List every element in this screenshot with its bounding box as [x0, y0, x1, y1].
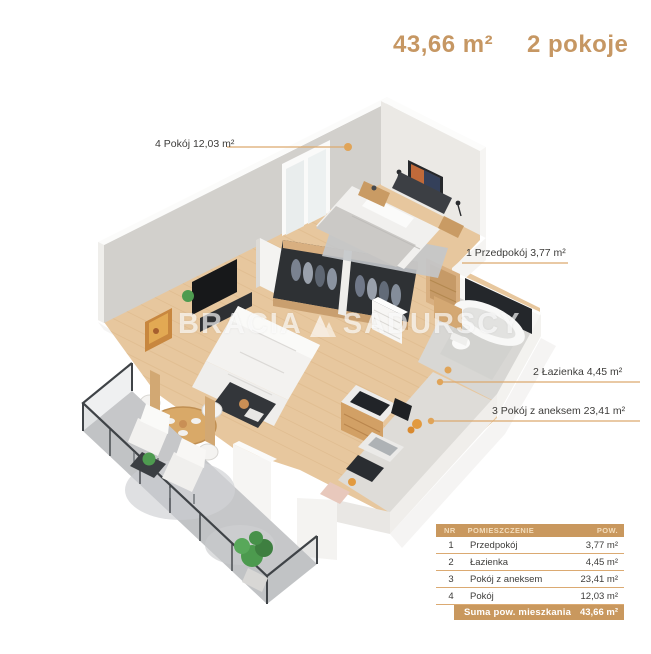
- row-area: 4,45 m²: [586, 557, 618, 568]
- table-header-row: NR POMIESZCZENIE POW.: [436, 524, 624, 537]
- row-room: Pokój z aneksem: [470, 574, 581, 585]
- table-plant: [143, 453, 156, 466]
- watermark-left: BRACIA: [178, 308, 303, 341]
- row-area: 23,41 m²: [581, 574, 619, 585]
- footer-label: Suma pow. mieszkania: [464, 607, 580, 618]
- header-room: POMIESZCZENIE: [468, 526, 597, 535]
- watermark-right: SADURSCY: [343, 308, 522, 341]
- table-row: 4 Pokój 12,03 m²: [436, 588, 624, 605]
- agency-watermark: BRACIA SADURSCY: [178, 308, 522, 341]
- listing-floorplan-image: 43,66 m² 2 pokoje BRACIA SADURSCY 4 Pokó…: [0, 0, 651, 654]
- header-area: POW.: [597, 526, 618, 535]
- shelf-plant: [182, 290, 194, 302]
- total-area-heading: 43,66 m²: [393, 31, 493, 59]
- room-label-lazienka: 2 Łazienka 4,45 m²: [533, 366, 622, 378]
- footer-value: 43,66 m²: [580, 607, 618, 618]
- table-footer-row: Suma pow. mieszkania 43,66 m²: [454, 605, 624, 620]
- row-room: Łazienka: [470, 557, 586, 568]
- leader-dot-icon: [437, 379, 443, 385]
- row-nr: 3: [444, 574, 458, 585]
- leader-dot-icon: [344, 143, 352, 151]
- room-areas-table: NR POMIESZCZENIE POW. 1 Przedpokój 3,77 …: [436, 524, 624, 620]
- row-area: 3,77 m²: [586, 540, 618, 551]
- room-label-pokoj: 4 Pokój 12,03 m²: [155, 138, 234, 150]
- row-nr: 2: [444, 557, 458, 568]
- row-room: Przedpokój: [470, 540, 586, 551]
- fruit-bowl: [412, 419, 422, 429]
- rooms-count-heading: 2 pokoje: [527, 31, 628, 59]
- table-row: 1 Przedpokój 3,77 m²: [436, 537, 624, 554]
- mountain-logo-icon: [310, 315, 336, 337]
- row-area: 12,03 m²: [581, 591, 619, 602]
- room-label-pokoj-z-aneksem: 3 Pokój z aneksem 23,41 m²: [492, 405, 625, 417]
- table-row: 2 Łazienka 4,45 m²: [436, 554, 624, 571]
- row-nr: 4: [444, 591, 458, 602]
- leader-dot-icon: [428, 418, 434, 424]
- room-label-przedpokoj: 1 Przedpokój 3,77 m²: [466, 247, 566, 259]
- wall-lamp-icon: [456, 201, 461, 206]
- row-nr: 1: [444, 540, 458, 551]
- row-room: Pokój: [470, 591, 581, 602]
- header-nr: NR: [444, 526, 456, 535]
- table-row: 3 Pokój z aneksem 23,41 m²: [436, 571, 624, 588]
